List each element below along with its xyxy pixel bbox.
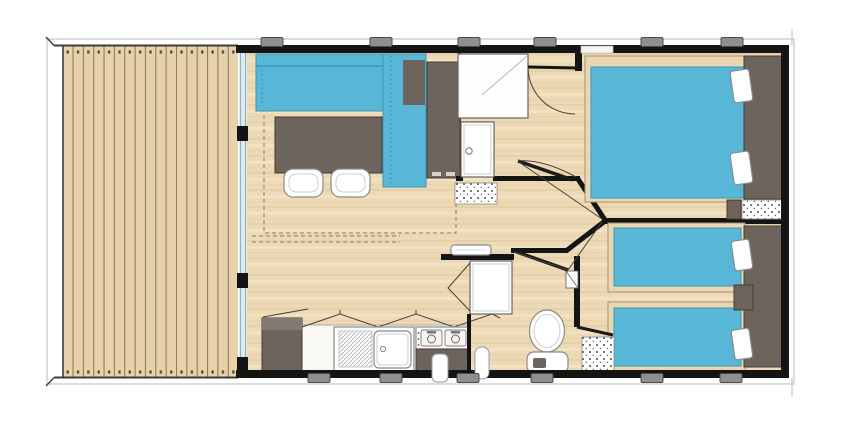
bathroom-door-leaf (528, 67, 576, 68)
glazed-bay-wall (237, 53, 248, 370)
double-bed-mattress (591, 67, 744, 198)
window-tab-top-3 (458, 38, 480, 47)
window-tab-top-2 (370, 38, 392, 47)
window-tab-bottom-1 (308, 374, 330, 383)
pillow-4 (731, 328, 753, 360)
glass-mullion-3 (237, 357, 248, 370)
pillow-1 (730, 69, 753, 103)
bedroom1-step-unit (727, 200, 741, 219)
window-tab-top-5 (641, 38, 663, 47)
chair-left (284, 169, 323, 197)
window-tab-top-4 (534, 38, 556, 47)
corner-sofa-seat (256, 54, 401, 111)
top-wall-window (581, 46, 613, 53)
window-tab-top-6 (721, 38, 743, 47)
window-tab-top-1 (261, 38, 283, 47)
wardrobe-handle-right (446, 172, 455, 176)
bedroom-1 (585, 56, 782, 219)
window-tab-bottom-4 (531, 374, 553, 383)
entry-threshold (432, 354, 448, 382)
glass-mullion-1 (237, 126, 248, 141)
bathroom-door-panel (461, 122, 494, 177)
stove-two-burners (416, 327, 468, 349)
glass-mullion-2 (237, 273, 248, 288)
wall-top (236, 45, 789, 53)
pillow-2 (730, 151, 753, 185)
kitchen-sink (334, 327, 414, 371)
floorplan-svg (0, 0, 854, 428)
floorplan-canvas (0, 0, 854, 428)
wall-right (781, 45, 789, 378)
single-bed-b-mattress (614, 308, 741, 366)
window-tab-bottom-3 (457, 374, 479, 383)
pillow-3 (731, 239, 753, 271)
wardrobe-handle-left (432, 172, 441, 176)
wc-east-wall (574, 256, 580, 327)
deck-planks (63, 45, 238, 378)
deck-screw-row-bottom (63, 366, 238, 374)
dining-table (275, 117, 382, 173)
chair-right (331, 169, 370, 197)
nightstand (734, 285, 753, 310)
wardrobe (427, 62, 460, 178)
deck-screw-row-top (63, 48, 238, 56)
bedroom1-door-mat (742, 200, 782, 219)
door-stop-marker (566, 271, 578, 288)
window-tab-bottom-2 (380, 374, 402, 383)
bath-mat (455, 183, 497, 204)
single-bed-a-mattress (614, 228, 741, 286)
terrace-deck (46, 37, 238, 386)
sofa-corner-unit (403, 60, 425, 105)
window-tab-bottom-6 (720, 374, 742, 383)
wc-west-wall (467, 314, 471, 372)
bedroom2-door-mat (582, 337, 614, 371)
wc-toilet (527, 310, 568, 373)
fridge-top (262, 318, 302, 330)
window-tab-bottom-5 (641, 374, 663, 383)
